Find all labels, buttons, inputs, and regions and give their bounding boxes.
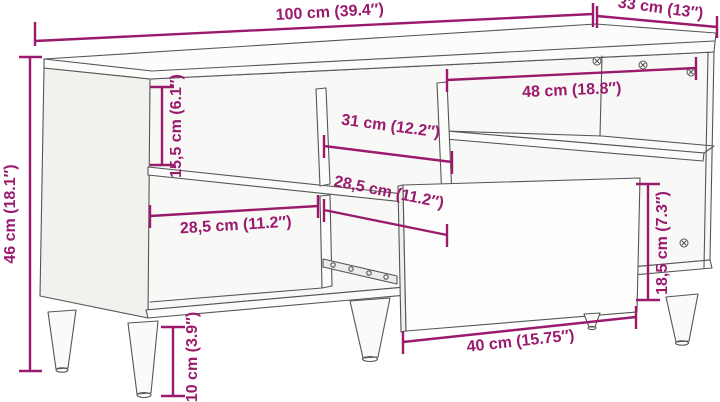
dim-label-drawer-front-width: 40 cm (15.75″) (466, 327, 575, 356)
dim-overall-height: 46 cm (18.1″) (2, 57, 42, 371)
furniture-dimension-diagram: 100 cm (39.4″) 33 cm (13″) 46 cm (18.1″)… (0, 0, 720, 402)
left-side-panel (40, 68, 150, 318)
cabinet-line-art: 100 cm (39.4″) 33 cm (13″) 46 cm (18.1″)… (0, 0, 720, 402)
dim-leg-height: 10 cm (3.9″) (161, 312, 201, 402)
dim-label-upper-compartment-height: 15,5 cm (6.1″) (168, 74, 185, 178)
leg-front-middle (350, 298, 390, 358)
dim-label-drawer-front-height: 18,5 cm (7.3″) (654, 191, 671, 295)
leg-back-right (666, 294, 698, 342)
lower-divider (320, 195, 332, 288)
dim-label-overall-width: 100 cm (39.4″) (275, 1, 384, 24)
dim-label-overall-height: 46 cm (18.1″) (2, 164, 19, 263)
leg-back-left (48, 310, 76, 369)
dim-label-leg-height: 10 cm (3.9″) (184, 312, 201, 402)
leg-front-left (128, 321, 158, 394)
